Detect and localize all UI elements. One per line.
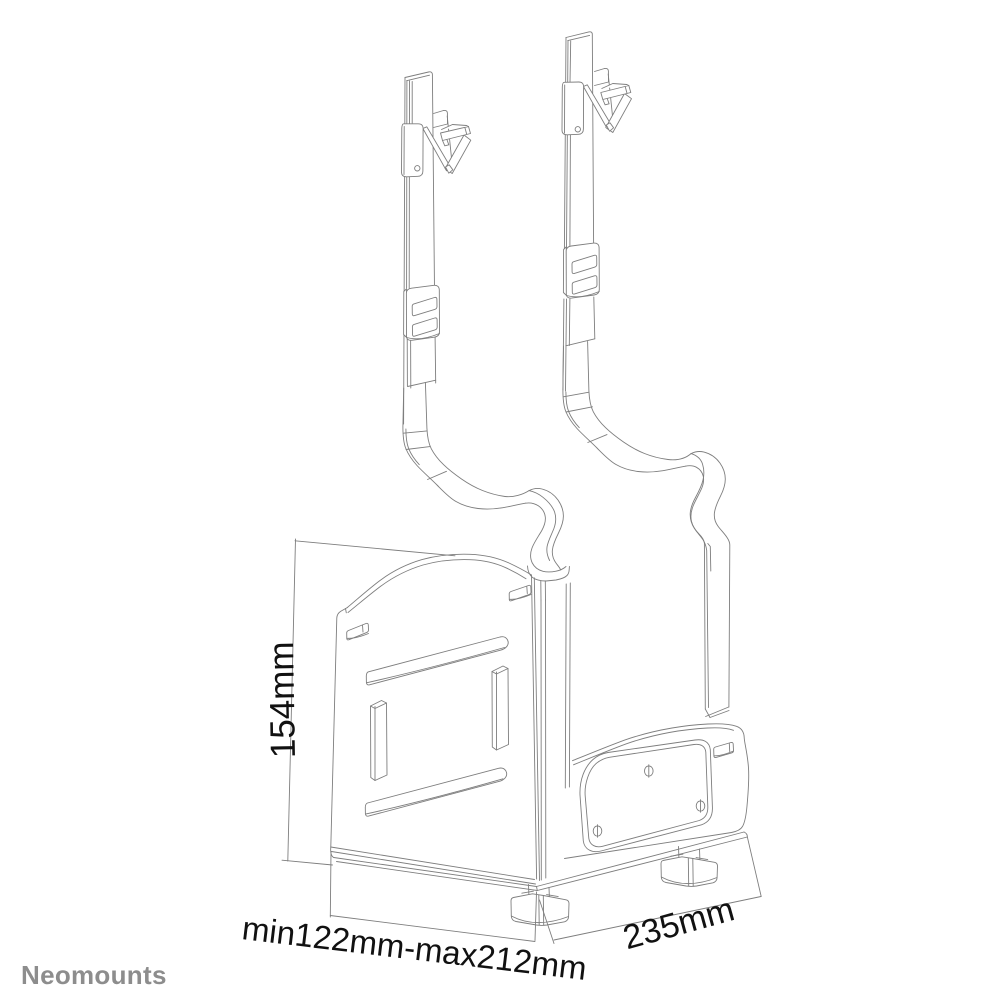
svg-text:Neomounts: Neomounts	[21, 960, 167, 990]
svg-text:235mm: 235mm	[619, 890, 738, 957]
svg-text:154mm: 154mm	[262, 641, 303, 758]
